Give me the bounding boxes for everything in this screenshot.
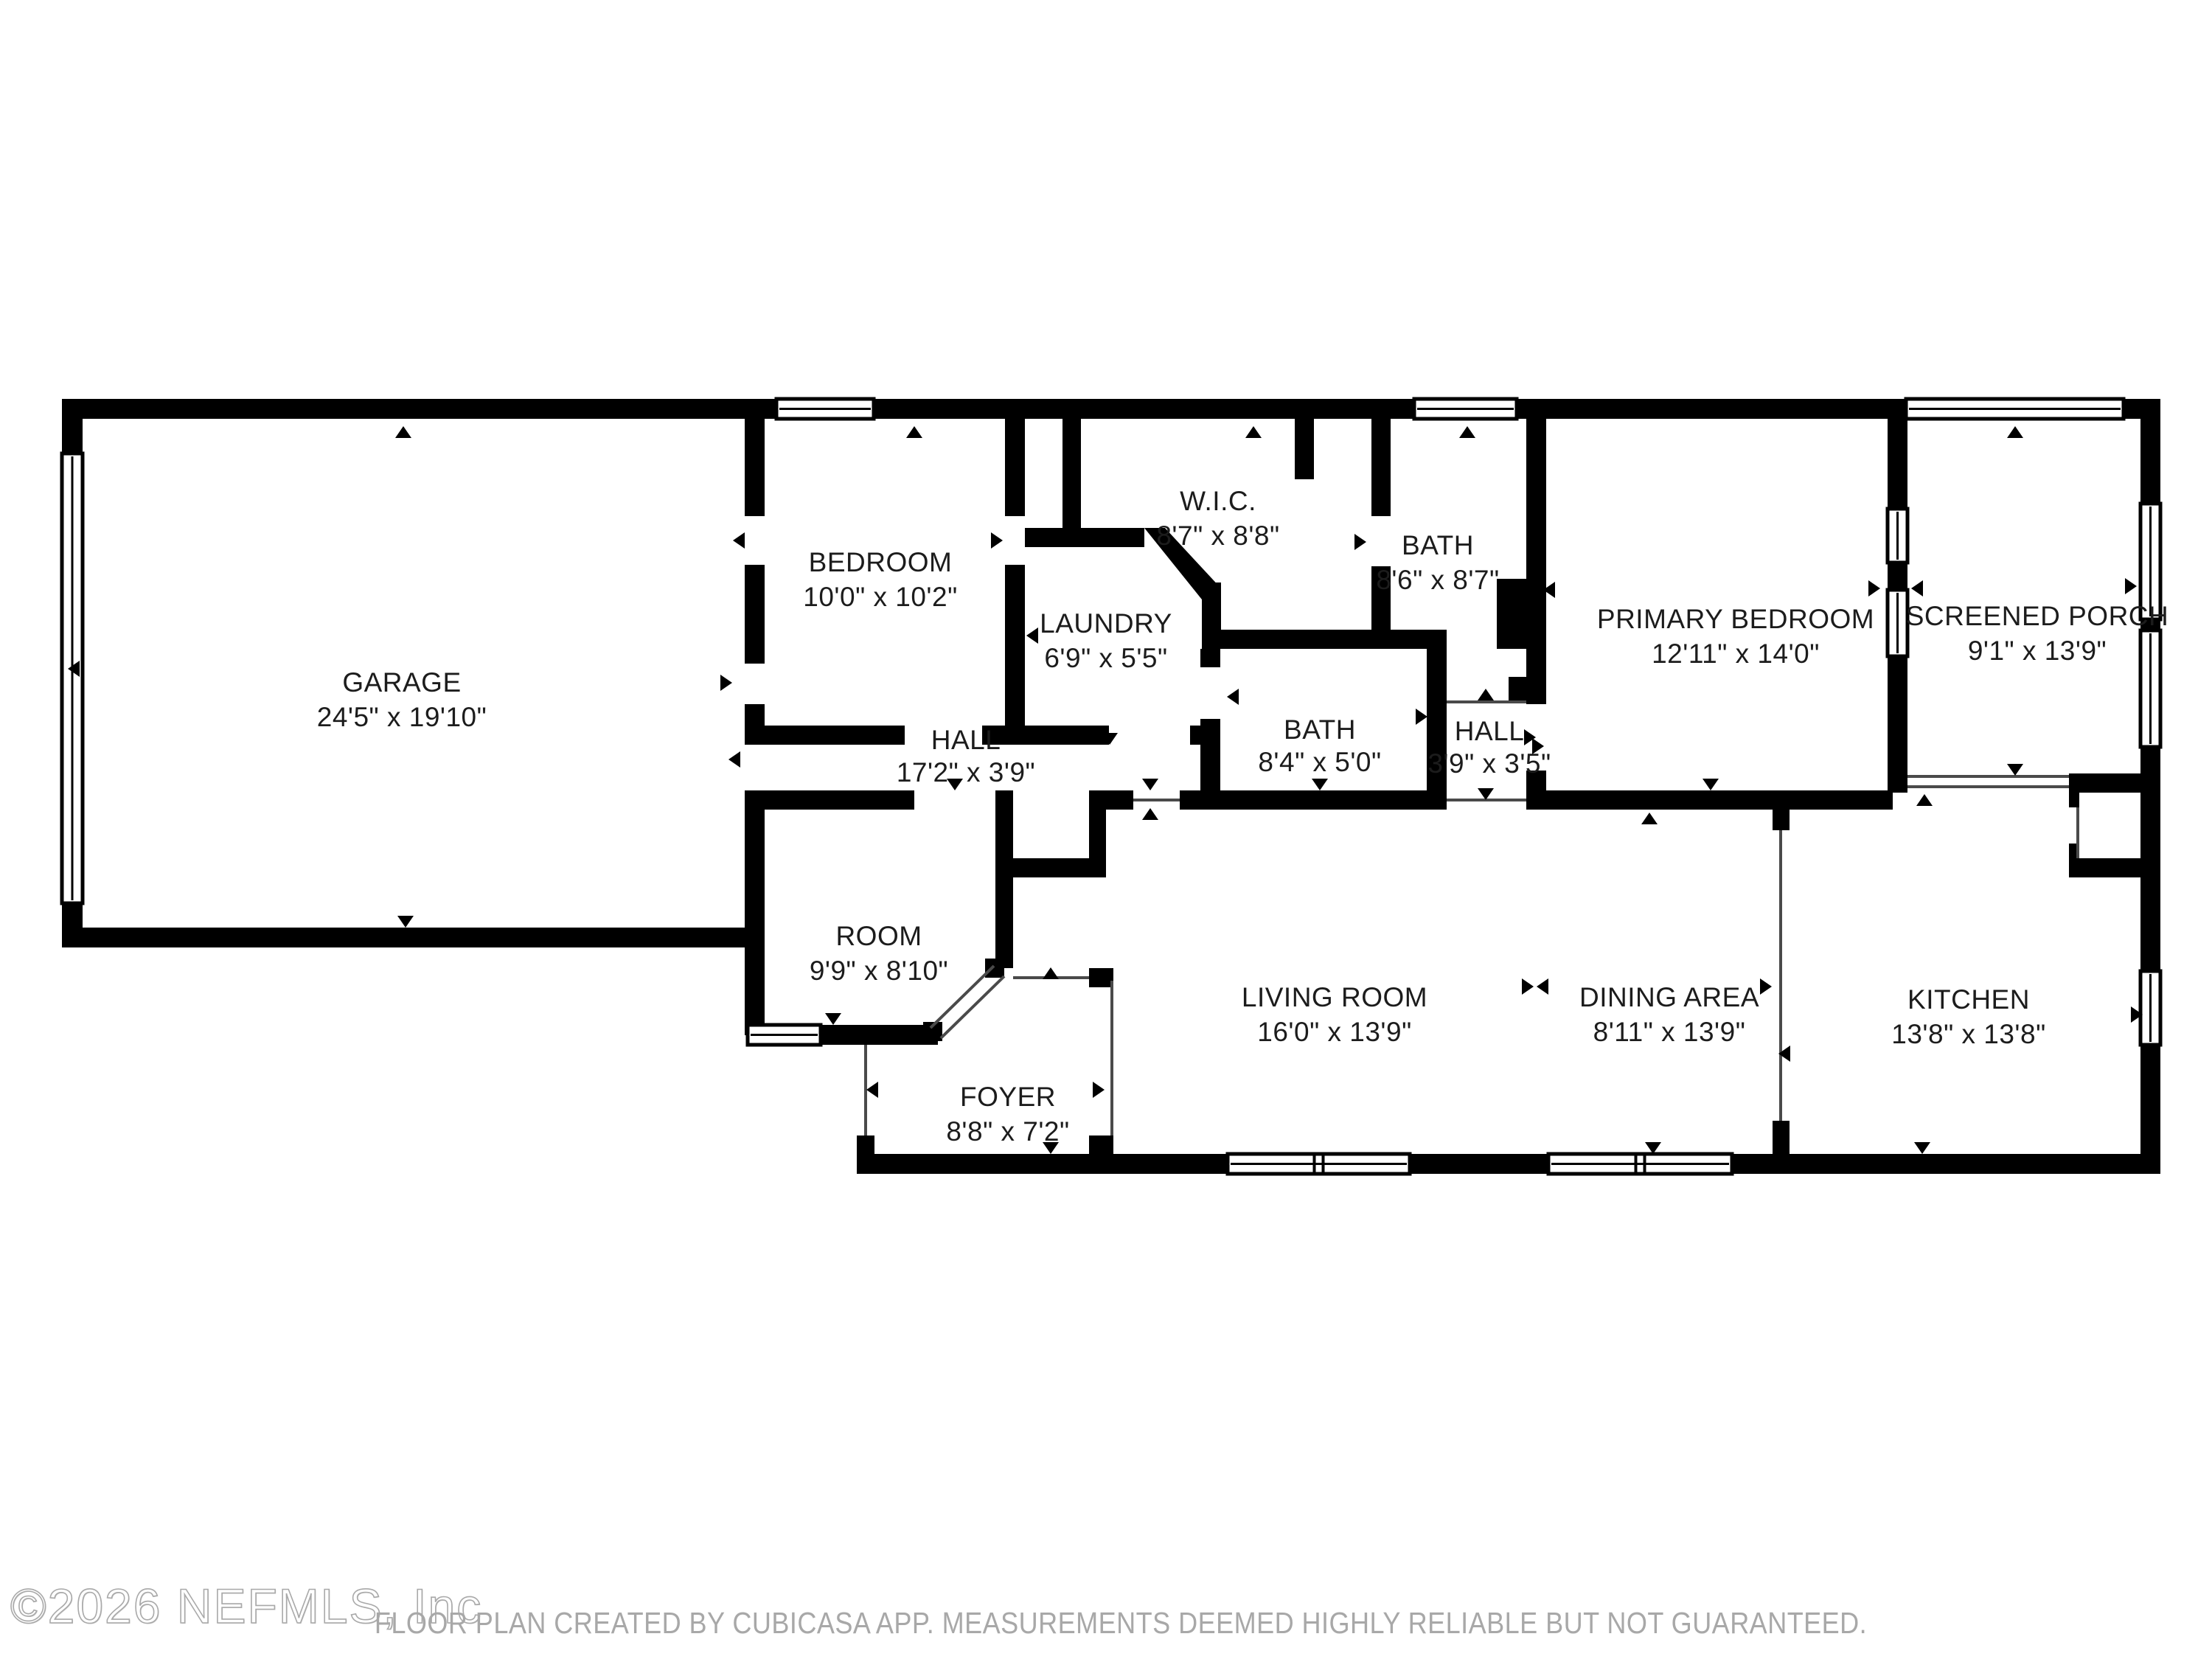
door-direction-marker: [1760, 978, 1772, 995]
door-direction-marker: [1478, 788, 1494, 800]
wall-segment: [995, 810, 1013, 968]
room-label-group: PRIMARY BEDROOM12'11" x 14'0": [1597, 604, 1874, 669]
wall-segment: [2140, 1045, 2160, 1174]
wall-segment: [1089, 790, 1133, 810]
door-direction-marker: [2125, 578, 2137, 594]
door-direction-marker: [720, 675, 732, 691]
window-symbol: [1906, 399, 2124, 419]
wall-segment: [985, 959, 1004, 978]
wall-segment: [745, 565, 765, 664]
door-direction-marker: [991, 532, 1003, 549]
wall-segment: [982, 726, 1109, 745]
room-label: W.I.C.: [1180, 486, 1256, 516]
wall-segment: [1295, 419, 1314, 479]
wall-segment: [857, 1154, 1228, 1174]
room-label-group: KITCHEN13'8" x 13'8": [1891, 984, 2045, 1049]
wall-segment: [745, 704, 765, 726]
room-dimensions: 13'8" x 13'8": [1891, 1019, 2045, 1049]
floor-plan-page: { "watermark": {"text": "©2026 NEFMLS, I…: [0, 0, 2212, 1659]
window-symbol: [1228, 1154, 1410, 1174]
wall-segment: [2140, 793, 2160, 971]
wall-segment: [1517, 399, 1906, 419]
wall-segment: [1410, 1154, 1548, 1174]
wall-segment: [1888, 419, 1907, 509]
room-label: HALL: [931, 725, 1001, 755]
room-label: LAUNDRY: [1040, 608, 1172, 639]
wall-segment: [745, 726, 905, 745]
wall-segment: [62, 399, 776, 419]
door-direction-marker: [2007, 426, 2023, 438]
room-label: BATH: [1284, 714, 1356, 745]
wall-segment: [995, 790, 1013, 810]
wall-segment: [1427, 649, 1447, 810]
wall-segment: [821, 1025, 938, 1045]
room-dimensions: 8'8" x 7'2": [946, 1116, 1069, 1147]
floor-plan-canvas: GARAGE24'5" x 19'10"BEDROOM10'0" x 10'2"…: [0, 0, 2212, 1659]
wall-segment: [1089, 968, 1113, 987]
door-direction-marker: [1043, 967, 1059, 979]
door-direction-marker: [1416, 709, 1427, 725]
room-label-group: SCREENED PORCH9'1" x 13'9": [1906, 601, 2169, 666]
room-dimensions: 9'1" x 13'9": [1968, 636, 2107, 666]
room-label-group: BEDROOM10'0" x 10'2": [803, 547, 957, 612]
door-direction-marker: [1227, 689, 1239, 705]
wall-segment: [1180, 790, 1200, 810]
door-direction-marker: [1911, 580, 1923, 597]
room-label-group: ROOM9'9" x 8'10": [810, 921, 948, 986]
door-direction-marker: [728, 751, 740, 768]
room-dimensions: 16'0" x 13'9": [1257, 1017, 1411, 1047]
wall-segment: [857, 1025, 874, 1045]
wall-segment: [874, 399, 1414, 419]
door-direction-marker: [1026, 627, 1038, 644]
room-dimensions: 9'9" x 8'10": [810, 956, 948, 986]
wall-segment: [1371, 419, 1391, 516]
room-label: GARAGE: [342, 667, 461, 698]
room-dimensions: 8'4" x 5'0": [1258, 747, 1381, 777]
window-symbol: [1888, 590, 1907, 656]
room-label-group: GARAGE24'5" x 19'10": [317, 667, 487, 732]
cubicasa-disclaimer: FLOOR PLAN CREATED BY CUBICASA APP. MEAS…: [375, 1606, 1867, 1641]
door-direction-marker: [1478, 689, 1494, 700]
wall-segment: [1089, 1135, 1113, 1154]
wall-segment: [1773, 810, 1790, 830]
door-direction-marker: [906, 426, 922, 438]
room-label: FOYER: [960, 1082, 1056, 1112]
wall-segment: [2069, 858, 2140, 877]
room-dimensions: 8'7" x 8'8": [1156, 521, 1279, 551]
wall-segment: [2140, 747, 2160, 793]
wall-segment: [2140, 419, 2160, 504]
wall-segment: [2069, 773, 2140, 793]
room-dimensions: 8'6" x 8'7": [1376, 565, 1499, 595]
wall-segment: [1888, 563, 1907, 590]
window-symbol: [1414, 399, 1517, 419]
floor-plan-drawing: GARAGE24'5" x 19'10"BEDROOM10'0" x 10'2"…: [0, 0, 2212, 1659]
window-symbol: [2140, 971, 2160, 1045]
wall-segment: [62, 928, 763, 947]
door-direction-marker: [1459, 426, 1475, 438]
room-dimensions: 10'0" x 10'2": [803, 582, 957, 612]
wall-segment: [1732, 1154, 2160, 1174]
door-direction-marker: [1641, 813, 1658, 824]
room-label: HALL: [1455, 716, 1525, 746]
wall-segment: [1888, 656, 1907, 793]
wall-segment: [2069, 793, 2079, 807]
wall-segment: [1200, 790, 1447, 810]
wall-segment: [1497, 579, 1546, 649]
room-label-group: DINING AREA8'11" x 13'9": [1579, 982, 1759, 1047]
wall-segment: [1005, 565, 1025, 745]
door-direction-marker: [1312, 779, 1328, 790]
room-label-group: BATH8'4" x 5'0": [1258, 714, 1381, 777]
door-direction-marker: [1537, 978, 1548, 995]
door-direction-marker: [1093, 1082, 1105, 1098]
door-direction-marker: [395, 426, 411, 438]
wall-segment: [745, 419, 765, 516]
room-label: ROOM: [835, 921, 922, 951]
window-symbol: [1548, 1154, 1732, 1174]
wall-segment: [1005, 419, 1025, 516]
wall-segment: [1025, 528, 1144, 547]
room-label-group: BATH8'6" x 8'7": [1376, 530, 1499, 595]
room-label: LIVING ROOM: [1242, 982, 1427, 1012]
window-symbol: [62, 453, 83, 903]
room-dimensions: 17'2" x 3'9": [897, 757, 1035, 787]
window-symbol: [748, 1025, 821, 1045]
door-direction-marker: [397, 916, 414, 928]
window-symbol: [2140, 630, 2160, 747]
door-direction-marker: [1142, 779, 1158, 790]
room-label-group: FOYER8'8" x 7'2": [946, 1082, 1069, 1147]
wall-segment: [1526, 649, 1546, 704]
room-label: PRIMARY BEDROOM: [1597, 604, 1874, 634]
door-direction-marker: [2007, 764, 2023, 776]
room-label: BATH: [1402, 530, 1474, 560]
room-label: DINING AREA: [1579, 982, 1759, 1012]
room-label-group: LAUNDRY6'9" x 5'5": [1040, 608, 1172, 673]
door-direction-marker: [733, 532, 745, 549]
door-direction-marker: [1142, 808, 1158, 820]
wall-segment: [745, 790, 765, 1035]
door-direction-marker: [825, 1013, 841, 1025]
room-dimensions: 6'9" x 5'5": [1044, 643, 1167, 673]
wall-segment: [2124, 399, 2160, 419]
door-direction-marker: [1703, 779, 1719, 790]
wall-segment: [1509, 677, 1526, 702]
room-label: KITCHEN: [1907, 984, 2030, 1015]
room-label: BEDROOM: [809, 547, 953, 577]
wall-segment: [1526, 790, 1893, 810]
door-direction-marker: [1868, 580, 1880, 597]
wall-segment: [62, 419, 83, 453]
room-dimensions: 12'11" x 14'0": [1652, 639, 1820, 669]
door-direction-marker: [1916, 794, 1933, 806]
wall-segment: [1062, 419, 1081, 528]
room-dimensions: 8'11" x 13'9": [1593, 1017, 1746, 1047]
wall-segment: [745, 790, 914, 810]
room-label: SCREENED PORCH: [1906, 601, 2169, 631]
wall-segment: [1202, 630, 1447, 649]
door-direction-marker: [1914, 1142, 1930, 1154]
door-direction-marker: [1354, 534, 1366, 550]
wall-segment: [1773, 1121, 1790, 1154]
door-direction-marker: [1245, 426, 1262, 438]
wall-segment: [1526, 419, 1546, 579]
door-direction-marker: [1522, 978, 1534, 995]
room-label-group: LIVING ROOM16'0" x 13'9": [1242, 982, 1427, 1047]
window-symbol: [776, 399, 874, 419]
room-dimensions: 24'5" x 19'10": [317, 702, 487, 732]
wall-segment: [995, 858, 1106, 877]
room-dimensions: 3'9" x 3'5": [1427, 748, 1551, 779]
door-direction-marker: [866, 1082, 878, 1098]
wall-segment: [1200, 649, 1220, 667]
room-label-group: W.I.C.8'7" x 8'8": [1156, 486, 1279, 551]
window-symbol: [1888, 509, 1907, 563]
